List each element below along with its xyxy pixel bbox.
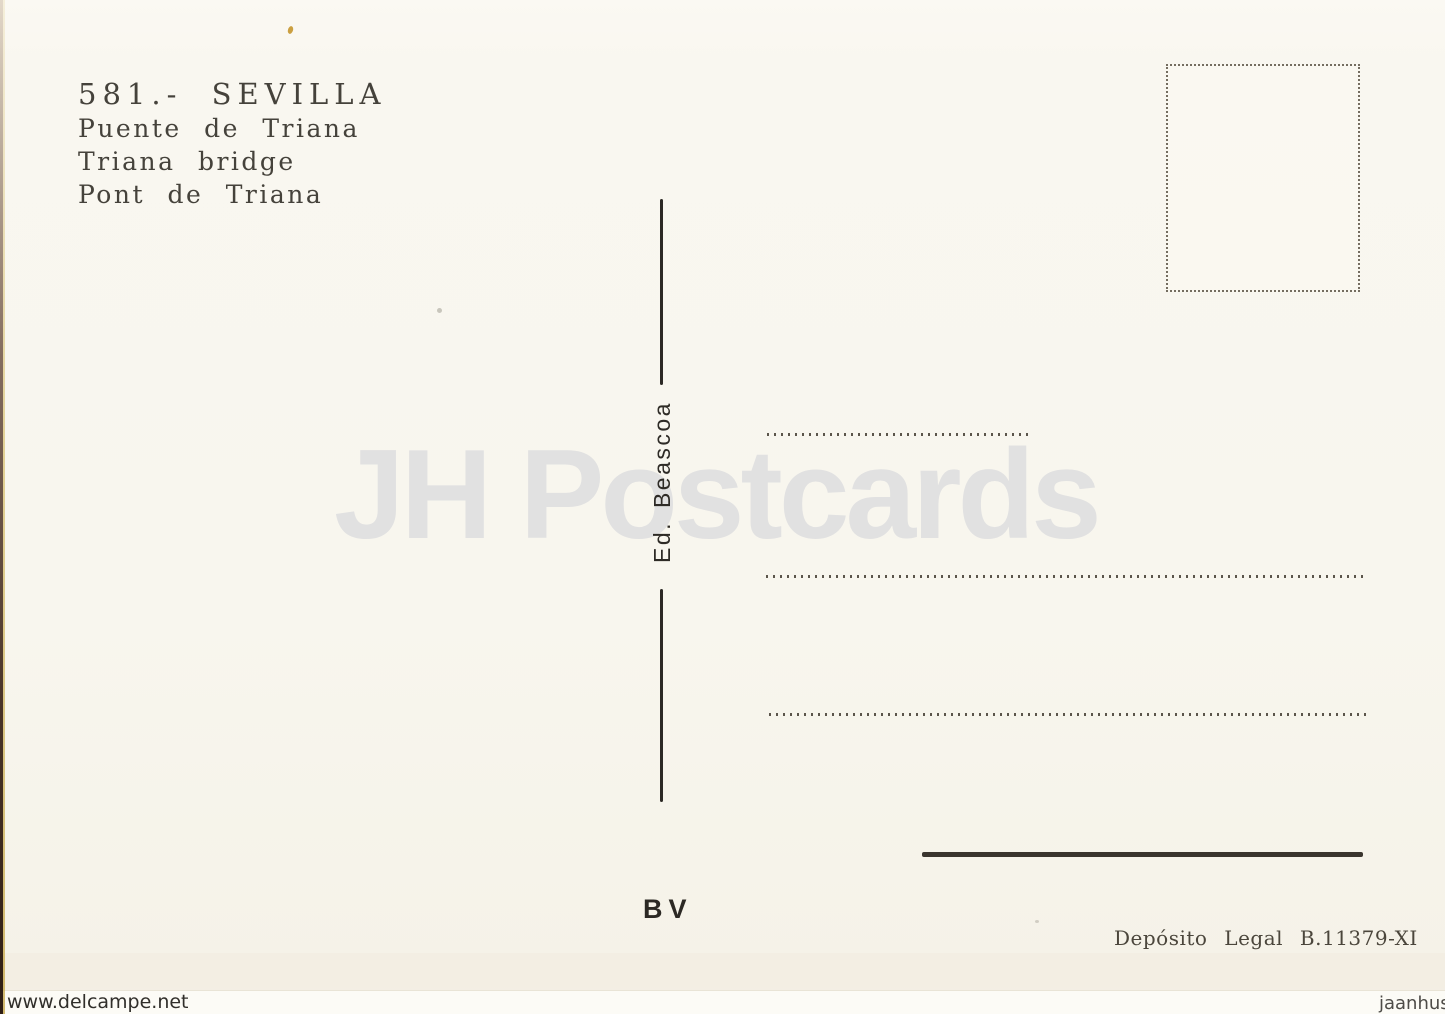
stamp-box xyxy=(1166,64,1360,292)
watermark-jaanhus: jaanhus xyxy=(1379,993,1445,1014)
caption-english: Triana bridge xyxy=(78,145,386,178)
watermark-jh-postcards: JH Postcards xyxy=(334,431,1098,558)
divider-line-top xyxy=(660,199,663,385)
divider-line-bottom xyxy=(660,589,663,802)
deposito-legal: Depósito Legal B.11379-XI xyxy=(1114,926,1418,950)
scan-speck xyxy=(1035,920,1039,923)
card-number-title: 581.- SEVILLA xyxy=(78,76,386,112)
caption-french: Pont de Triana xyxy=(78,178,386,211)
caption-spanish: Puente de Triana xyxy=(78,112,386,145)
address-line-2 xyxy=(766,575,1363,578)
scan-speck xyxy=(287,25,294,34)
watermark-delcampe: www.delcampe.net xyxy=(7,991,189,1013)
postcard-back-scan: JH Postcards 581.- SEVILLA Puente de Tri… xyxy=(0,0,1445,1014)
scan-shadow-band xyxy=(0,953,1445,990)
scan-edge-left-gold xyxy=(3,0,5,1014)
address-line-1 xyxy=(767,433,1032,436)
card-bottom-edge xyxy=(0,990,1445,1014)
publisher-label: Ed. Beascoa xyxy=(649,397,675,567)
printer-initials: BV xyxy=(643,894,693,925)
scan-speck xyxy=(437,308,442,313)
address-underline xyxy=(922,852,1363,857)
address-line-3 xyxy=(769,713,1367,716)
caption-block: 581.- SEVILLA Puente de Triana Triana br… xyxy=(78,76,386,211)
